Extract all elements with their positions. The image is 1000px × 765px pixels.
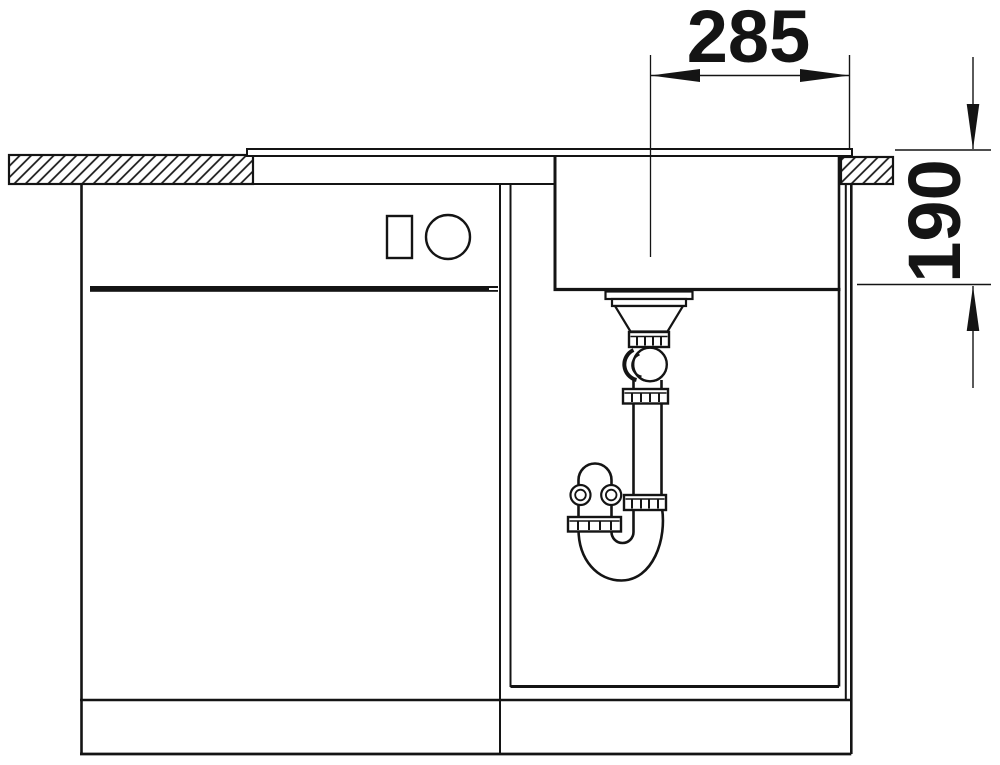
pipe-union-nut-lower bbox=[624, 495, 666, 510]
joint-ring-right bbox=[601, 485, 621, 505]
drain-funnel-cup bbox=[615, 306, 683, 332]
panel-gap-notch bbox=[489, 288, 498, 290]
worktop bbox=[9, 149, 893, 184]
dimension-label-depth: 190 bbox=[893, 159, 976, 282]
sink-installation-drawing: 285 190 bbox=[0, 0, 1000, 765]
joint-ring-left bbox=[571, 485, 591, 505]
pipe-union-nut-upper bbox=[623, 389, 668, 404]
sink-rim bbox=[247, 149, 852, 156]
strainer-nut bbox=[629, 332, 669, 347]
technical-drawing-canvas: 285 190 bbox=[0, 0, 1000, 765]
arrowhead-down bbox=[967, 104, 980, 150]
appliance-display-window bbox=[387, 216, 412, 258]
ball-elbow-joint bbox=[624, 348, 666, 382]
riser-joint-rings bbox=[571, 485, 622, 505]
dimension-vertical-190: 190 bbox=[857, 57, 991, 388]
trap-pipe-outline bbox=[579, 380, 663, 581]
drain-fitting bbox=[606, 292, 693, 332]
drain-flange-upper bbox=[606, 292, 693, 300]
base-cabinets bbox=[80, 183, 851, 754]
worktop-left-section bbox=[9, 155, 253, 184]
siphon-trap bbox=[568, 292, 693, 581]
arrowhead-up bbox=[967, 286, 980, 331]
appliance-control-knob bbox=[426, 215, 470, 259]
riser-union-nut bbox=[568, 517, 621, 532]
left-cabinet-panel-gap-band bbox=[90, 286, 498, 292]
worktop-right-section bbox=[841, 157, 893, 184]
dimension-label-width: 285 bbox=[687, 0, 810, 78]
dimension-horizontal-285: 285 bbox=[650, 0, 850, 149]
